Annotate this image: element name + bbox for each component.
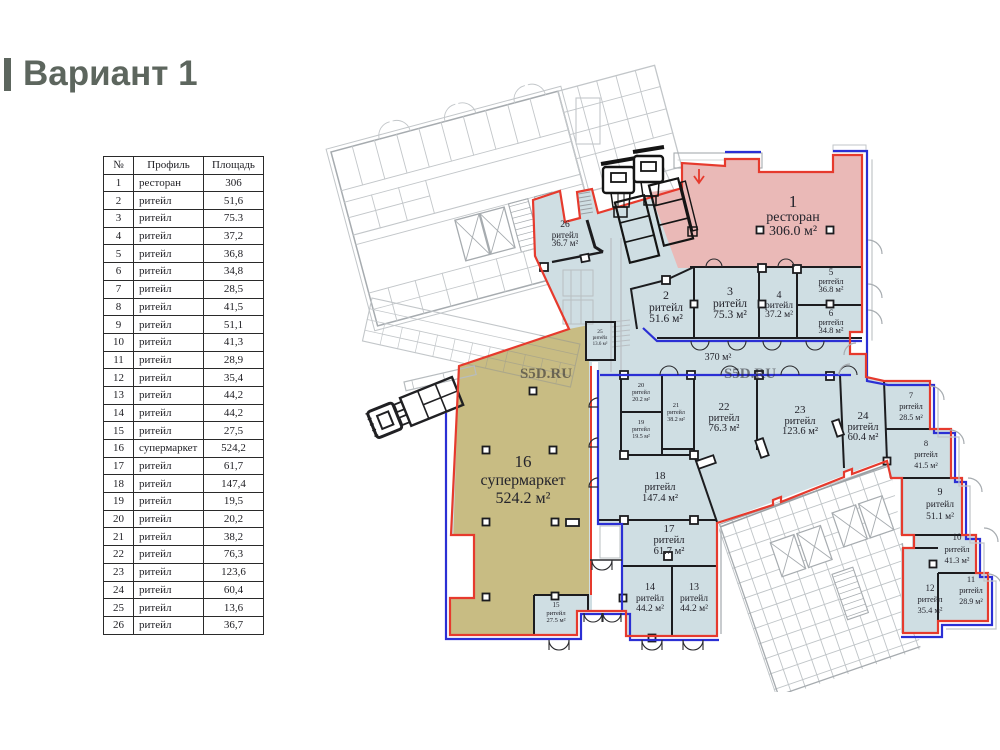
svg-text:37.2 м²: 37.2 м² [765, 310, 793, 320]
svg-text:17: 17 [664, 523, 676, 535]
svg-text:1: 1 [789, 192, 798, 211]
svg-text:26: 26 [560, 220, 570, 230]
svg-text:ритейл: ритейл [926, 499, 954, 510]
svg-text:41.5 м²: 41.5 м² [914, 461, 938, 470]
svg-text:44.2 м²: 44.2 м² [636, 604, 664, 614]
svg-text:19: 19 [638, 419, 645, 426]
svg-text:ритейл: ритейл [645, 482, 676, 493]
svg-text:10: 10 [953, 532, 963, 542]
svg-text:S5D.RU: S5D.RU [520, 366, 572, 382]
svg-text:ритейл: ритейл [593, 336, 608, 341]
svg-text:ритейл: ритейл [917, 594, 943, 604]
svg-text:S5D.RU: S5D.RU [724, 366, 776, 382]
svg-text:27.5 м²: 27.5 м² [546, 617, 565, 624]
svg-text:ритейл: ритейл [632, 389, 650, 396]
svg-text:16: 16 [515, 452, 532, 471]
svg-text:9: 9 [938, 487, 943, 498]
svg-text:36.7 м²: 36.7 м² [552, 238, 579, 248]
svg-text:25: 25 [597, 329, 603, 335]
svg-text:18: 18 [655, 470, 667, 482]
svg-text:ритейл: ритейл [667, 409, 685, 416]
svg-text:36.8 м²: 36.8 м² [819, 284, 844, 294]
svg-text:15: 15 [553, 601, 561, 609]
svg-text:123.6 м²: 123.6 м² [782, 426, 818, 437]
svg-text:11: 11 [967, 574, 975, 584]
svg-text:3: 3 [727, 284, 733, 298]
svg-text:ритейл: ритейл [546, 610, 566, 617]
svg-text:ритейл: ритейл [899, 402, 923, 411]
svg-text:41.3 м²: 41.3 м² [945, 555, 970, 565]
svg-text:34.8 м²: 34.8 м² [819, 325, 844, 335]
svg-text:ритейл: ритейл [914, 450, 938, 459]
svg-text:4: 4 [777, 290, 782, 301]
svg-text:14: 14 [645, 582, 655, 593]
svg-text:20.2 м²: 20.2 м² [632, 397, 650, 403]
svg-text:22: 22 [719, 401, 730, 413]
svg-text:19.5 м²: 19.5 м² [632, 434, 650, 440]
svg-text:ритейл: ритейл [680, 593, 708, 604]
svg-text:8: 8 [924, 438, 928, 448]
svg-text:13.6 м²: 13.6 м² [593, 341, 608, 347]
svg-text:60.4 м²: 60.4 м² [848, 432, 879, 443]
svg-text:75.3 м²: 75.3 м² [713, 309, 747, 321]
svg-text:61.7 м²: 61.7 м² [654, 546, 685, 557]
svg-text:21: 21 [673, 402, 680, 409]
svg-text:24: 24 [858, 410, 870, 422]
svg-text:ритейл: ритейл [944, 544, 970, 554]
svg-text:20: 20 [638, 382, 645, 389]
svg-text:12: 12 [926, 583, 935, 593]
svg-text:2: 2 [663, 288, 669, 302]
svg-text:ритейл: ритейл [654, 535, 685, 546]
svg-text:супермаркет: супермаркет [481, 472, 566, 489]
svg-text:35.4 м²: 35.4 м² [918, 605, 943, 615]
svg-text:51.1 м²: 51.1 м² [926, 512, 954, 522]
svg-text:44.2 м²: 44.2 м² [680, 604, 708, 614]
svg-text:23: 23 [795, 404, 807, 416]
svg-text:7: 7 [909, 390, 913, 400]
svg-text:28.9 м²: 28.9 м² [959, 597, 983, 606]
svg-text:13: 13 [689, 582, 699, 593]
svg-text:ритейл: ритейл [959, 586, 983, 595]
svg-text:51.6 м²: 51.6 м² [649, 313, 683, 325]
svg-text:370 м²: 370 м² [705, 352, 732, 363]
svg-text:524.2 м²: 524.2 м² [496, 490, 551, 507]
svg-text:147.4 м²: 147.4 м² [642, 493, 678, 504]
svg-text:306.0 м²: 306.0 м² [769, 224, 817, 239]
svg-text:28.5 м²: 28.5 м² [899, 413, 923, 422]
svg-text:ритейл: ритейл [632, 426, 650, 433]
svg-text:76.3 м²: 76.3 м² [709, 423, 740, 434]
svg-text:ритейл: ритейл [636, 593, 664, 604]
svg-text:38.2 м²: 38.2 м² [667, 417, 685, 423]
svg-text:ресторан: ресторан [766, 210, 820, 225]
